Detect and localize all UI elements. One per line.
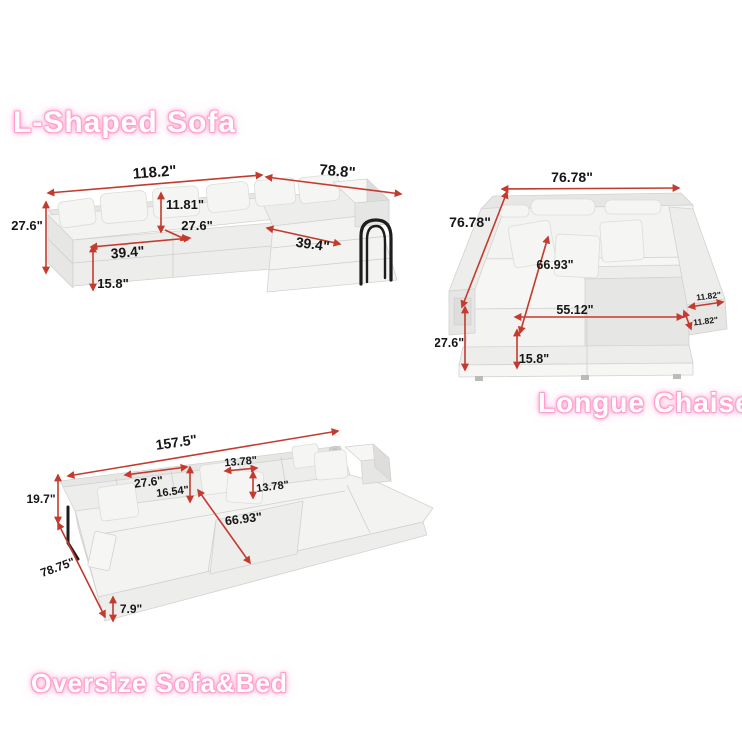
l-shaped-sofa-figure: 118.2" 78.8" 27.6" 11.81" 27.6" 39.4" 15…	[5, 160, 445, 345]
section-title-oversize-sofa-bed: Oversize Sofa&Bed	[31, 668, 288, 699]
pillow	[100, 190, 148, 224]
dim-label-base-height: 15.8"	[97, 276, 128, 291]
dim-label-seat-width: 39.4"	[110, 243, 145, 262]
sofa-panel	[459, 345, 693, 365]
dim-label-inner-depth: 66.93"	[536, 258, 573, 272]
dimension-arrow	[502, 188, 679, 189]
section-title-l-shaped-sofa: L-Shaped Sofa	[13, 106, 236, 140]
dim-label-pillow-height: 11.81"	[166, 197, 204, 212]
side-pocket	[454, 298, 471, 325]
oversize-sofa-bed-illustration	[60, 443, 433, 621]
bolster-cushion	[531, 199, 595, 215]
pillow	[206, 181, 251, 213]
dim-label-mattress-height: 7.9"	[120, 602, 142, 616]
sofa-panel	[585, 277, 689, 347]
pillow	[600, 220, 645, 263]
pillow	[254, 177, 296, 206]
dim-label-overall-height: 19.7"	[26, 492, 55, 506]
bolster-cushion	[499, 205, 529, 217]
product-dimension-sheet: L-Shaped Sofa	[0, 0, 742, 742]
dim-label-total-width: 118.2"	[132, 162, 177, 182]
dim-label-inner-width: 55.12"	[556, 303, 593, 317]
sofa-panel	[459, 363, 693, 377]
longue-chaise-figure: 76.78" 76.78" 66.93" 55.12" 11.82" 11.82…	[435, 163, 742, 410]
bolster-cushion	[605, 200, 661, 214]
dim-label-total-depth: 76.78"	[449, 214, 491, 230]
oversize-sofa-bed-figure: 157.5" 27.6" 13.78" 16.54" 13.78" 66.93"…	[15, 425, 465, 650]
l-shaped-sofa-illustration	[48, 174, 397, 292]
dim-label-chaise-length: 78.8"	[319, 161, 357, 181]
dim-label-total-depth: 78.75"	[38, 555, 76, 580]
pillow	[314, 450, 348, 481]
pillow	[97, 483, 139, 522]
section-title-longue-chaise: Longue Chaise	[538, 387, 742, 419]
pillow	[57, 198, 96, 229]
dim-label-base-height: 15.8"	[519, 352, 549, 366]
dim-label-total-length: 157.5"	[155, 431, 198, 453]
dim-label-overall-height: 27.6"	[11, 218, 42, 233]
dim-label-overall-height: 27.6"	[435, 336, 464, 350]
dim-label-seat-depth: 27.6"	[181, 218, 212, 233]
dim-label-total-width: 76.78"	[551, 169, 593, 185]
